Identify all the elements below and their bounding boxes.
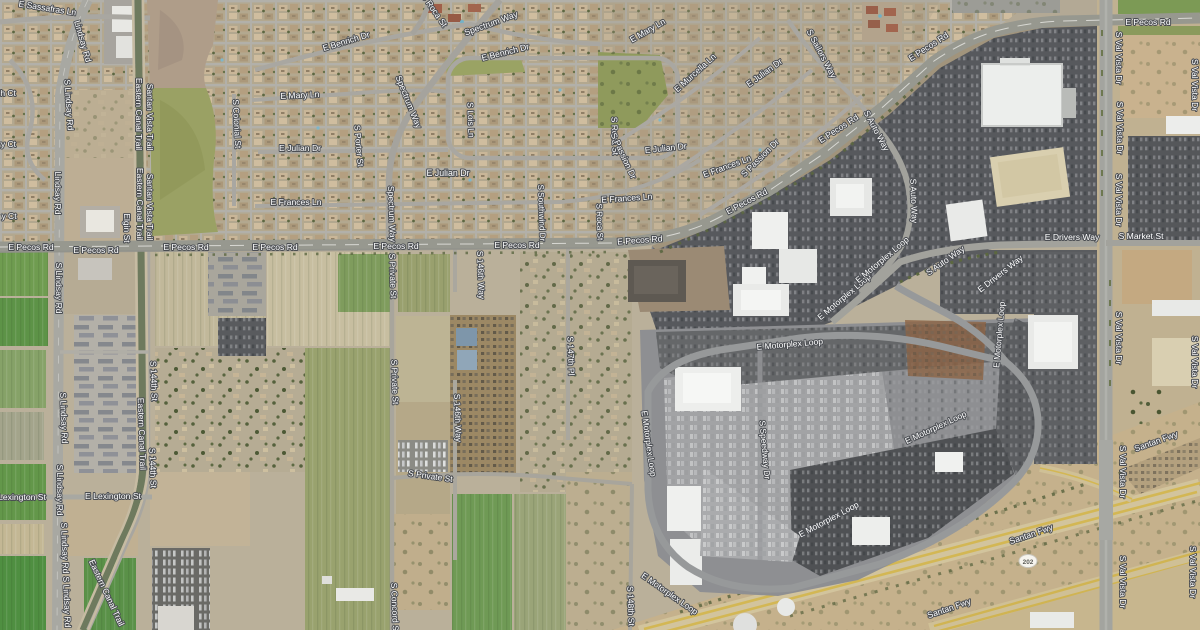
svg-text:Santan Vista Trail: Santan Vista Trail [145, 84, 155, 151]
svg-text:S Concord St: S Concord St [389, 582, 401, 630]
svg-text:S 147th Pl: S 147th Pl [565, 336, 576, 376]
svg-text:S 144th St: S 144th St [147, 448, 158, 489]
svg-text:S Val Vista Dr: S Val Vista Dr [1115, 102, 1125, 155]
svg-text:S Lindsay Rd: S Lindsay Rd [59, 522, 71, 574]
svg-text:S 148th St: S 148th St [625, 586, 636, 627]
svg-text:E Pecos Rd: E Pecos Rd [163, 242, 209, 252]
svg-text:S Lindsay Rd: S Lindsay Rd [55, 464, 65, 515]
svg-text:Eastern Canal Trail: Eastern Canal Trail [135, 168, 145, 240]
svg-text:S Private St: S Private St [387, 253, 399, 299]
svg-text:E Pecos Rd: E Pecos Rd [73, 245, 119, 255]
svg-text:S Val Vista Dr: S Val Vista Dr [1114, 312, 1124, 365]
svg-text:S Lindsay Rd: S Lindsay Rd [61, 576, 73, 628]
svg-text:S Val Vista Dr: S Val Vista Dr [1190, 336, 1200, 388]
svg-text:Eastern Canal Trail: Eastern Canal Trail [134, 78, 144, 150]
svg-text:S Val Vista Dr: S Val Vista Dr [1118, 446, 1128, 499]
svg-text:202: 202 [1023, 559, 1034, 566]
svg-text:Spectrum Way: Spectrum Way [386, 186, 398, 243]
svg-text:E Lexington St: E Lexington St [85, 491, 142, 501]
svg-text:E Pecos Rd: E Pecos Rd [494, 240, 540, 250]
svg-text:E Drivers Way: E Drivers Way [1045, 232, 1100, 242]
svg-text:E Pecos Rd: E Pecos Rd [373, 241, 419, 251]
svg-text:S Roca St: S Roca St [594, 203, 604, 241]
svg-text:S 146th Way: S 146th Way [452, 394, 464, 443]
svg-text:E Pecos Rd: E Pecos Rd [252, 242, 298, 252]
svg-text:S Lois Ln: S Lois Ln [465, 102, 476, 138]
svg-text:E Mary Ln: E Mary Ln [280, 89, 320, 101]
svg-text:ch Ct: ch Ct [0, 88, 17, 98]
svg-text:S Val Vista Dr: S Val Vista Dr [1114, 174, 1124, 227]
svg-text:y Ct: y Ct [1, 211, 17, 221]
svg-text:Lexington St: Lexington St [0, 492, 46, 502]
svg-text:E Julian Dr: E Julian Dr [426, 168, 469, 178]
svg-text:S Val Vista Dr: S Val Vista Dr [1190, 59, 1200, 111]
svg-text:Elgin St: Elgin St [122, 213, 132, 243]
svg-text:S Private St: S Private St [389, 359, 401, 405]
svg-text:S Val Vista Dr: S Val Vista Dr [1118, 556, 1128, 609]
svg-text:S 144th St: S 144th St [148, 361, 159, 402]
svg-text:S Lindsay Rd: S Lindsay Rd [58, 392, 70, 444]
svg-text:S 146th Way: S 146th Way [475, 251, 487, 300]
svg-text:S Val Vista Dr: S Val Vista Dr [1188, 546, 1198, 598]
svg-text:Santan Vista Trail: Santan Vista Trail [145, 174, 155, 241]
svg-text:S Auto Way: S Auto Way [908, 178, 920, 224]
svg-text:Lindsay Rd: Lindsay Rd [53, 172, 63, 215]
svg-text:S Lindsay Rd: S Lindsay Rd [54, 262, 64, 313]
svg-text:E Pecos Rd: E Pecos Rd [8, 242, 54, 252]
svg-text:S Val Vista Dr: S Val Vista Dr [1114, 32, 1124, 85]
svg-text:E Pecos Rd: E Pecos Rd [1125, 17, 1171, 27]
svg-text:E Julian Dr: E Julian Dr [279, 143, 321, 153]
svg-text:S Market St: S Market St [1119, 231, 1165, 241]
svg-text:E Frances Ln: E Frances Ln [270, 197, 321, 207]
svg-text:ry Ct: ry Ct [0, 139, 17, 149]
